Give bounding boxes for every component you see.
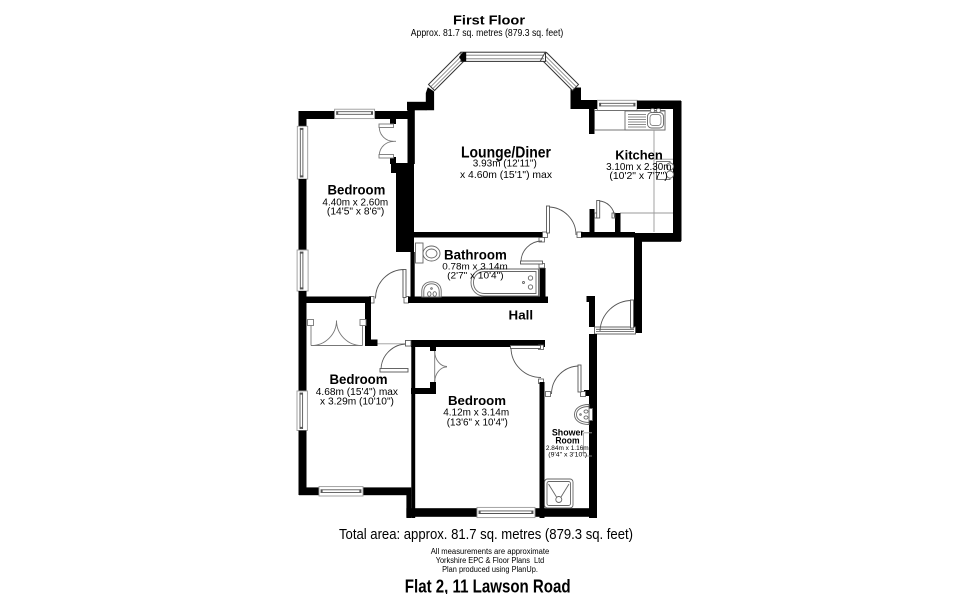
svg-text:Bedroom: Bedroom: [448, 393, 506, 408]
svg-text:3.93m (12'11"): 3.93m (12'11"): [473, 159, 537, 170]
svg-text:(2'7" x 10'4"): (2'7" x 10'4"): [447, 270, 503, 281]
svg-text:Yorkshire EPC & Floor Plans L: Yorkshire EPC & Floor Plans Ltd: [436, 556, 545, 565]
svg-text:Hall: Hall: [509, 307, 534, 322]
svg-text:x 4.60m (15'1") max: x 4.60m (15'1") max: [460, 170, 553, 181]
svg-text:Room: Room: [555, 436, 579, 446]
svg-text:(10'2" x 7'7"): (10'2" x 7'7"): [609, 171, 667, 182]
svg-text:All measurements are approxima: All measurements are approximate: [431, 547, 550, 556]
svg-text:Kitchen: Kitchen: [615, 147, 663, 162]
svg-text:(9'4" x 3'10"): (9'4" x 3'10"): [548, 452, 587, 459]
svg-text:First Floor: First Floor: [453, 13, 525, 28]
svg-text:(13'6" x 10'4"): (13'6" x 10'4"): [447, 418, 508, 429]
svg-text:Flat 2, 11 Lawson Road: Flat 2, 11 Lawson Road: [405, 577, 571, 594]
svg-text:Bathroom: Bathroom: [444, 248, 507, 263]
svg-text:Total area: approx. 81.7 sq. m: Total area: approx. 81.7 sq. metres (879…: [339, 527, 633, 543]
svg-text:Bedroom: Bedroom: [329, 372, 387, 387]
svg-text:Plan produced using PlanUp.: Plan produced using PlanUp.: [442, 565, 538, 574]
svg-text:Approx. 81.7 sq. metres (879.3: Approx. 81.7 sq. metres (879.3 sq. feet): [411, 28, 564, 39]
svg-text:x 3.29m (10'10"): x 3.29m (10'10"): [320, 397, 394, 408]
svg-text:(14'5" x 8'6"): (14'5" x 8'6"): [327, 207, 384, 218]
svg-text:Bedroom: Bedroom: [328, 183, 386, 198]
